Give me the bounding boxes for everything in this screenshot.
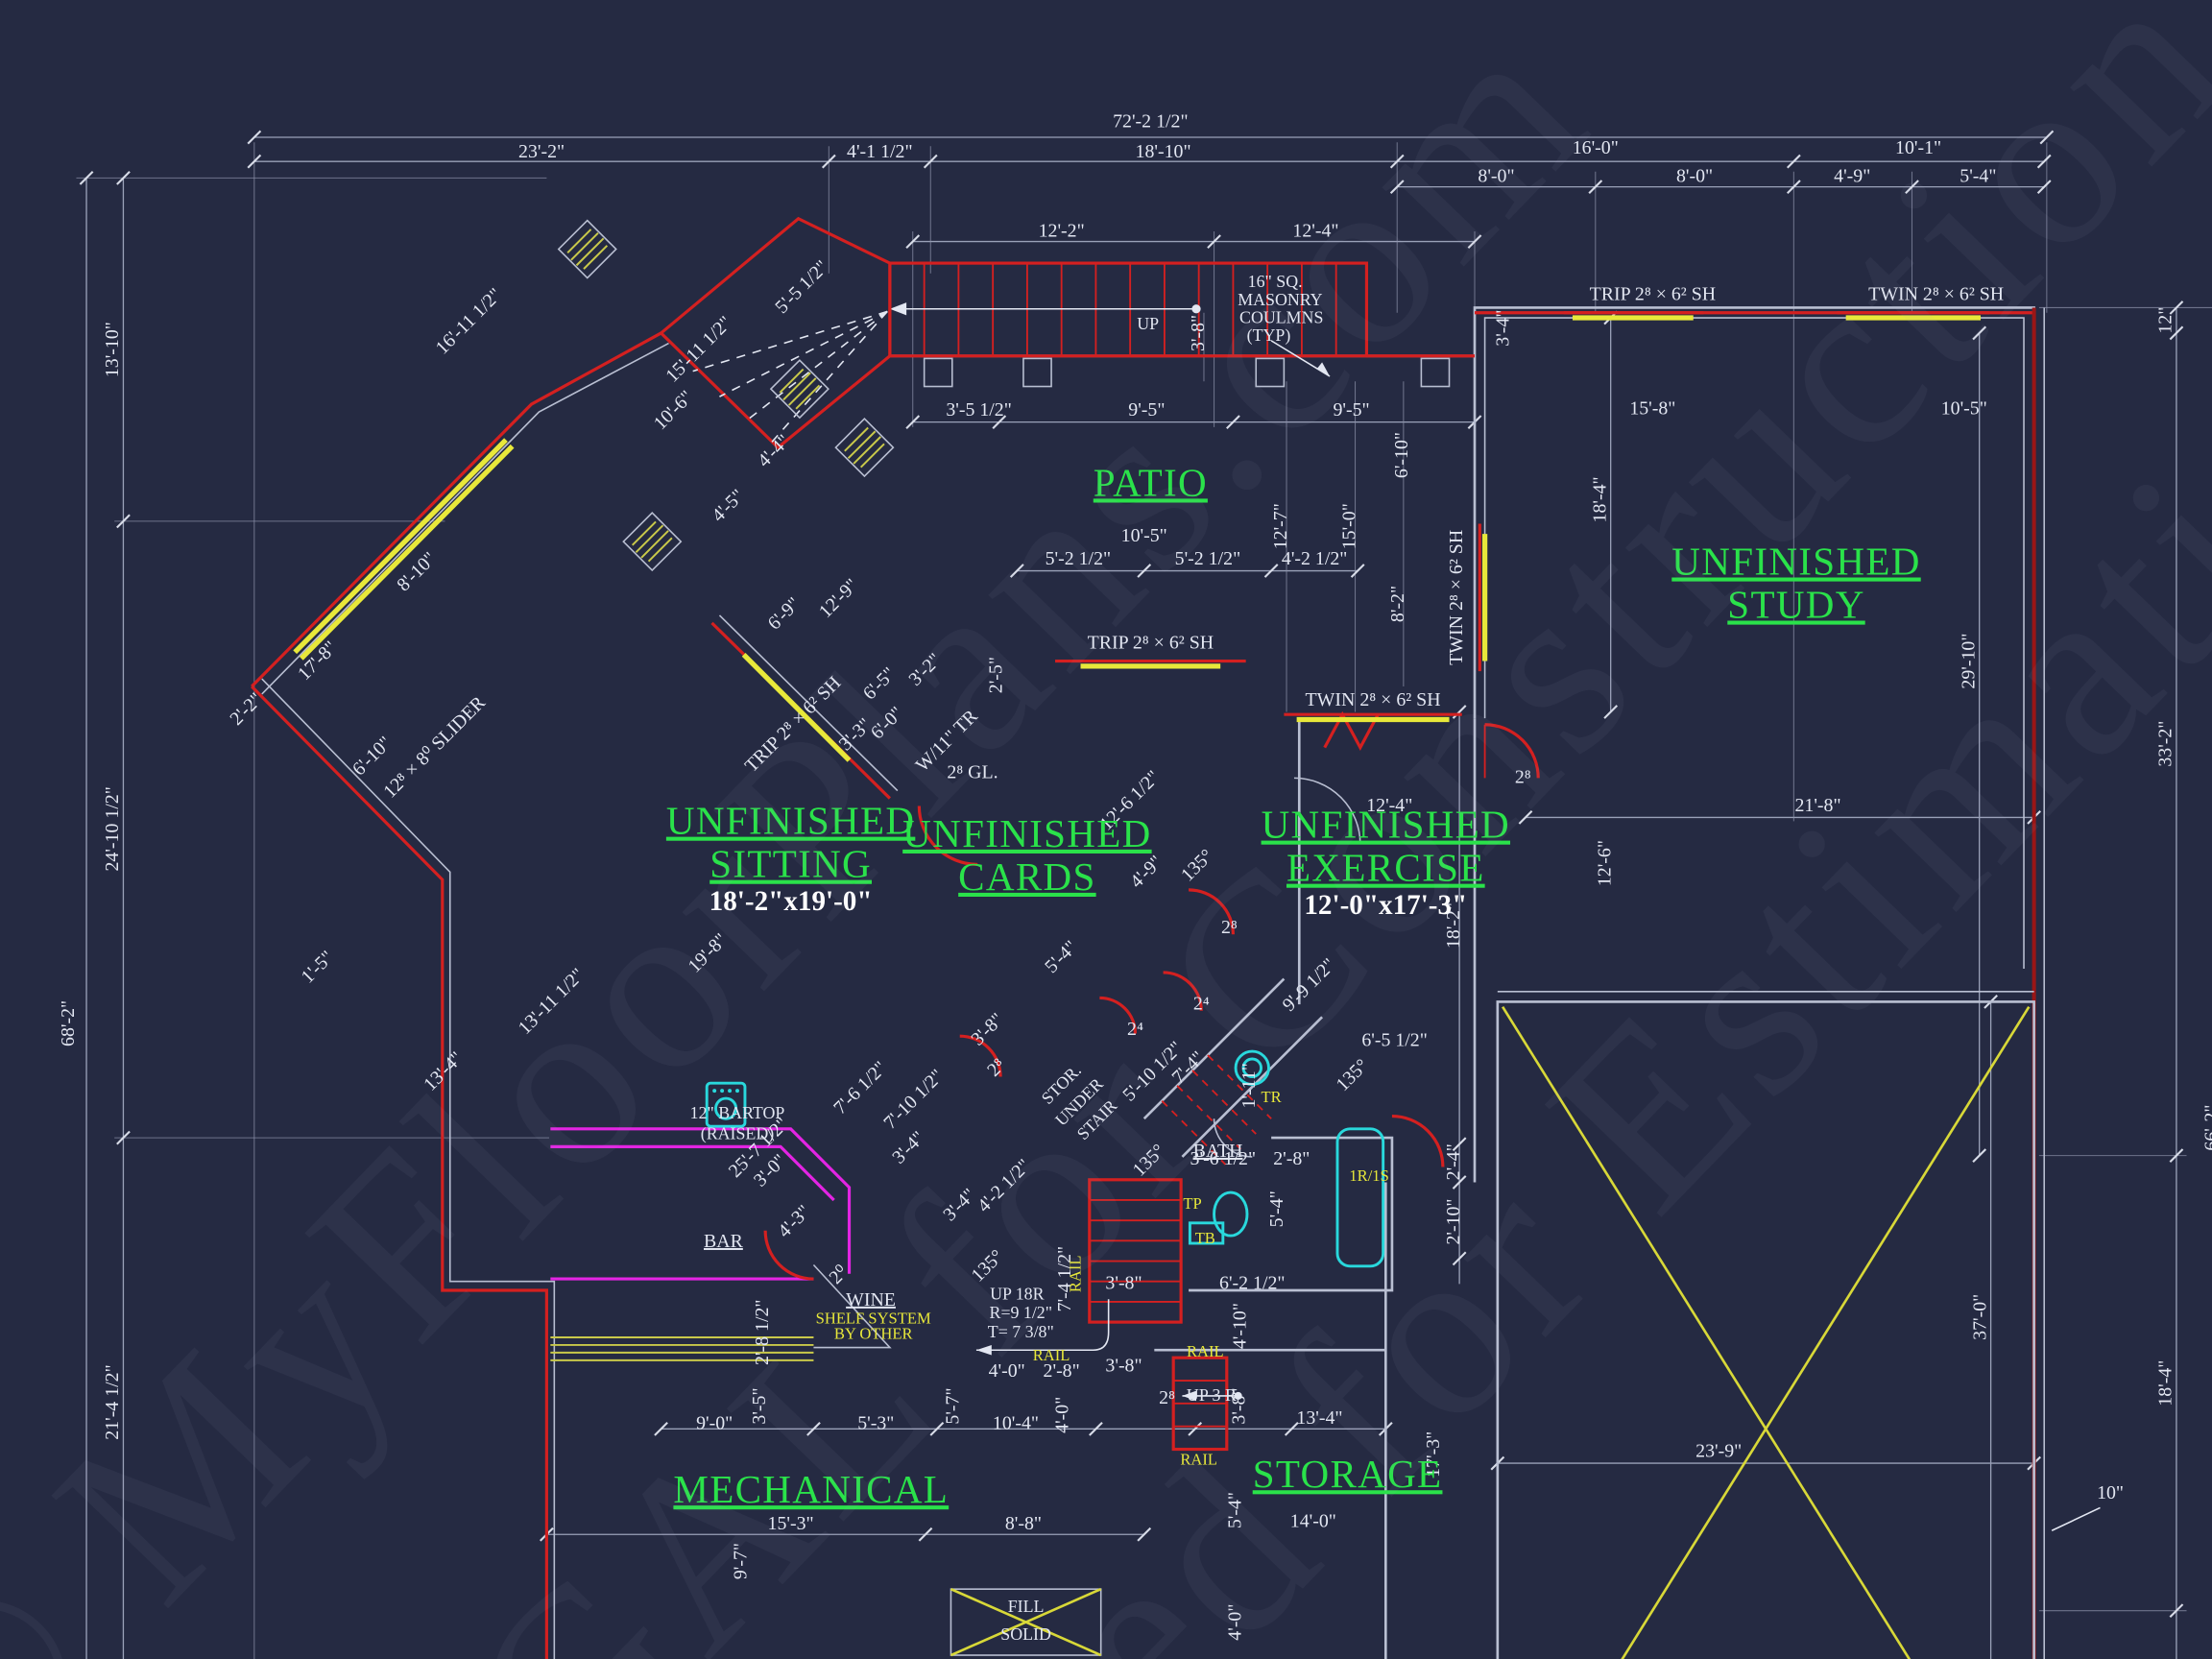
dimension-label: 6'-10": [349, 733, 397, 781]
room-label-cards: CARDS: [958, 854, 1095, 899]
dimension-label: 4'-0": [1051, 1397, 1072, 1433]
dimension-label: 8'-8": [1005, 1513, 1042, 1534]
dimension-label: 72'-2 1/2": [1113, 110, 1188, 132]
tb-label: TB: [1195, 1229, 1215, 1247]
dimension-label: 10'-6": [650, 387, 698, 435]
dimension-label: 6'-9": [763, 593, 805, 635]
dimension-label: 8'-10": [393, 548, 441, 596]
dimension-label: 5'-5 1/2": [771, 256, 832, 318]
dimension-label: 1'-5": [297, 947, 338, 988]
dimension-label: 12'-2": [1039, 220, 1085, 241]
dimension-label: 68'-2": [58, 1000, 79, 1046]
dimension-label: 12⁸ × 8⁰ SLIDER: [379, 691, 490, 802]
dimension-label: 4'-2 1/2": [1282, 548, 1348, 569]
dimension-label: 16'-11 1/2": [432, 284, 507, 359]
dimension-label: 3'-8": [1105, 1356, 1142, 1377]
dimension-label: 66'-2": [2200, 1104, 2212, 1150]
dimension-label: 4'-1 1/2": [847, 141, 913, 162]
dimension-label: 18'-10": [1136, 141, 1191, 162]
dimension-label: 5'-4": [1266, 1190, 1287, 1227]
dimension-label: 4'-3": [774, 1201, 815, 1242]
dimension-label: 23'-9": [1695, 1440, 1742, 1461]
dimension-label: 6'-2 1/2": [1219, 1273, 1285, 1294]
dimension-label: 12'-6": [1595, 840, 1616, 886]
dimension-label: 3'-4": [1493, 310, 1514, 347]
riser-label: 1R/1S: [1349, 1166, 1388, 1185]
blueprint-canvas: 72'-2 1/2" 23'-2" 4'-1 1/2" 18'-10" 16'-…: [0, 0, 2212, 1659]
dimension-label: 6'-10": [1391, 432, 1412, 478]
dimension-label: 23'-2": [518, 141, 565, 162]
bartop-note: (RAISED): [701, 1123, 774, 1143]
dimension-label: 12": [2155, 307, 2176, 334]
basement-plan-drawing: 72'-2 1/2" 23'-2" 4'-1 1/2" 18'-10" 16'-…: [0, 0, 2212, 1659]
dimension-label: 4'-4": [754, 431, 795, 472]
window-tag: TRIP 2⁸ × 6² SH: [1590, 283, 1716, 304]
dimension-label: 8'-2": [1387, 586, 1408, 622]
dimension-label: 13'-10": [102, 322, 123, 377]
room-label-bar: BAR: [704, 1231, 744, 1252]
dimension-label: 15'-0": [1339, 503, 1360, 549]
dimension-label: 7'-6 1/2": [829, 1057, 891, 1118]
dimension-label: 2'-8": [1273, 1148, 1310, 1169]
dimension-label: 37'-0": [1969, 1294, 1990, 1340]
dimension-label: 8'-0": [1676, 165, 1713, 186]
dimension-label: 4'-5": [708, 485, 749, 526]
dimension-label: 3'-5 1/2": [946, 399, 1012, 421]
dimension-label: 24'-10 1/2": [102, 786, 123, 871]
dimension-label: 18'-4": [2155, 1360, 2176, 1407]
dimension-label: 10": [2097, 1482, 2124, 1503]
